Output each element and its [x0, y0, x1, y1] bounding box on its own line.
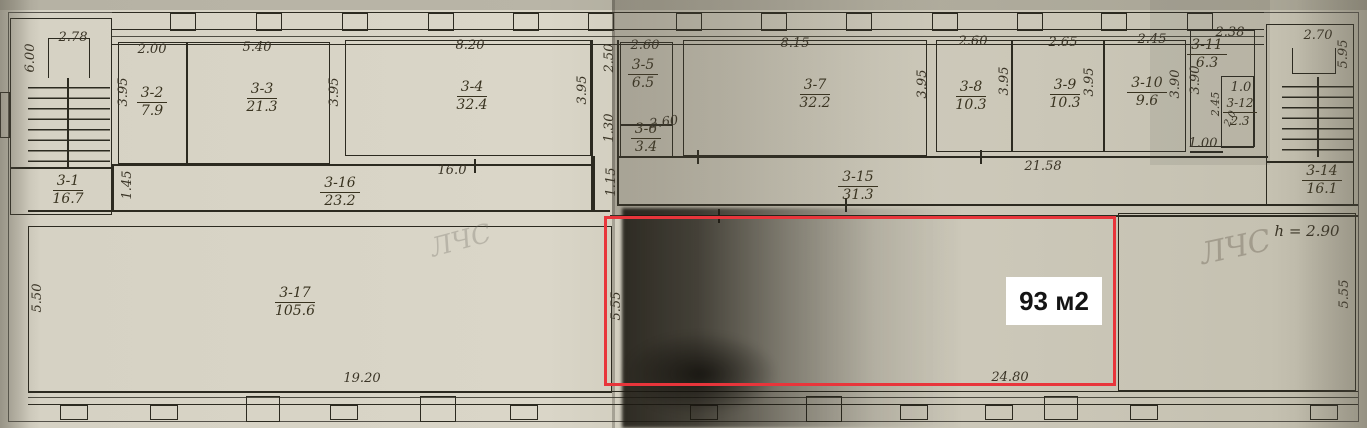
dim-label: 16.0: [430, 164, 474, 178]
dim-label: 24.80: [988, 371, 1032, 385]
staircase-left: [28, 78, 110, 168]
dim-label: 1.15: [605, 160, 619, 204]
dim-label: 3.90: [1169, 62, 1183, 106]
dim-label: 19.20: [340, 372, 384, 386]
room-area: 23.2: [312, 193, 368, 209]
scan-shadow-top-edge: [0, 0, 1367, 10]
dim-label: 2.00: [130, 43, 174, 57]
dim-label: 3.95: [1083, 60, 1097, 104]
dim-label: 3.90: [1189, 58, 1203, 102]
corridor-wall: [28, 210, 610, 212]
room-label-3-1: 3-116.7: [40, 174, 96, 207]
dim-label: 1.45: [121, 163, 135, 207]
room-label-3-3: 3-321.3: [234, 82, 290, 115]
bottom-wall: [28, 391, 1358, 405]
dim-label: 2.60: [623, 39, 667, 53]
window-pier: [1017, 13, 1043, 31]
room-id: 3-7: [800, 78, 831, 95]
room-area: 10.3: [943, 97, 999, 113]
room-id: 3-11: [1187, 38, 1226, 55]
window-pier: [330, 405, 358, 420]
room-label-3-2: 3-27.9: [124, 86, 180, 119]
dim-label: 2.70: [1296, 29, 1340, 43]
room-area: 16.1: [1294, 181, 1350, 197]
window-pier: [60, 405, 88, 420]
window-pier: [170, 13, 196, 31]
window-pier: [428, 13, 454, 31]
window-left-wall: [0, 92, 10, 138]
window-pier: [513, 13, 539, 31]
room-area: 32.2: [787, 95, 843, 111]
room-id: 3-14: [1302, 164, 1341, 181]
dim-label: 1.30: [603, 106, 617, 150]
corridor-wall: [112, 164, 114, 212]
stair-divider: [1317, 77, 1319, 157]
entry-pier: [246, 396, 280, 422]
room-area: 9.6: [1119, 93, 1175, 109]
room-id: 3-3: [247, 82, 278, 99]
window-pier: [900, 405, 928, 420]
room-label-3-8: 3-810.3: [943, 80, 999, 113]
window-pier: [761, 13, 787, 31]
room-area: 105.6: [267, 303, 323, 319]
dim-label: 21.58: [1021, 160, 1065, 174]
window-pier: [676, 13, 702, 31]
window-pier: [342, 13, 368, 31]
wall-line: [1190, 151, 1223, 153]
room-label-3-14: 3-1416.1: [1294, 164, 1350, 197]
room-id: 3-5: [628, 58, 659, 75]
room-label-3-17: 3-17105.6: [267, 286, 323, 319]
window-pier: [1310, 405, 1338, 420]
dim-label: 2.45: [1209, 82, 1223, 126]
top-wall-hairline: [112, 36, 1264, 37]
window-pier: [1130, 405, 1158, 420]
door-tick: [697, 150, 699, 164]
entry-pier: [420, 396, 456, 422]
room-area: 7.9: [124, 103, 180, 119]
window-pier: [150, 405, 178, 420]
bottom-wall-hairline: [28, 397, 1358, 398]
room-area: 16.7: [40, 191, 96, 207]
dim-label: 5.55: [1338, 272, 1352, 316]
dim-label: 1.00: [1181, 137, 1225, 151]
highlight-area-label: 93 м2: [1006, 277, 1102, 325]
room-label-3-10: 3-109.6: [1119, 76, 1175, 109]
window-pier: [588, 13, 614, 31]
dim-label: 2.38: [1208, 26, 1252, 40]
room-label-3-15: 3-1531.3: [830, 170, 886, 203]
dim-label: 3.95: [576, 68, 590, 112]
floor-plan-scan: 3-116.7 3-27.9 3-321.3 3-432.4 3-56.5 3-…: [0, 0, 1367, 428]
dim-label: 1.0: [1219, 81, 1263, 95]
window-pier: [690, 405, 718, 420]
room-label-3-7: 3-732.2: [787, 78, 843, 111]
room-id: 3-8: [956, 80, 987, 97]
corridor-wall: [593, 156, 595, 212]
door-tick: [980, 150, 982, 164]
dim-label: 2.78: [51, 31, 95, 45]
room-area: 32.4: [444, 97, 500, 113]
corridor-wall: [112, 164, 595, 166]
corridor-wall: [619, 204, 1358, 206]
dim-label: 5.40: [235, 41, 279, 55]
dim-label: 3.95: [117, 70, 131, 114]
room-id: 3-9: [1050, 78, 1081, 95]
dim-label: 5.50: [31, 276, 45, 320]
window-pier: [256, 13, 282, 31]
dim-label: 3.95: [328, 70, 342, 114]
dim-label: 3.95: [916, 62, 930, 106]
entry-pier: [1044, 396, 1078, 420]
window-pier: [985, 405, 1013, 420]
room-label-3-4: 3-432.4: [444, 80, 500, 113]
room-id: 3-16: [320, 176, 359, 193]
entry-pier: [806, 396, 842, 422]
dim-label: 5.55: [610, 284, 624, 328]
window-pier: [846, 13, 872, 31]
stair-divider: [67, 78, 69, 168]
room-label-3-5: 3-56.5: [615, 58, 671, 91]
dim-label: 2.65: [1041, 36, 1085, 50]
room-area: 31.3: [830, 187, 886, 203]
room-id: 3-15: [838, 170, 877, 187]
dim-label: 3.95: [998, 59, 1012, 103]
dim-label: 2.45: [1130, 33, 1174, 47]
window-pier: [1101, 13, 1127, 31]
window-pier: [932, 13, 958, 31]
stair-rail: [1292, 48, 1336, 74]
dim-label: 5.95: [1337, 32, 1351, 76]
dim-label: 8.15: [773, 37, 817, 51]
room-area: 21.3: [234, 99, 290, 115]
room-id: 3-1: [53, 174, 84, 191]
door-tick: [474, 159, 476, 173]
corridor-wall: [619, 156, 1268, 158]
room-area: 3.4: [618, 139, 674, 155]
room-id: 3-10: [1127, 76, 1166, 93]
height-note: h = 2.90: [1262, 224, 1352, 238]
dim-label: 6.00: [24, 36, 38, 80]
dim-label: 2.50: [603, 36, 617, 80]
room-id: 3-17: [275, 286, 314, 303]
room-id: 3-4: [457, 80, 488, 97]
dim-label: 8.20: [448, 39, 492, 53]
room-id: 3-2: [137, 86, 168, 103]
dim-label: 2.60: [951, 35, 995, 49]
room-area: 6.5: [615, 75, 671, 91]
room-label-3-16: 3-1623.2: [312, 176, 368, 209]
window-pier: [510, 405, 538, 420]
